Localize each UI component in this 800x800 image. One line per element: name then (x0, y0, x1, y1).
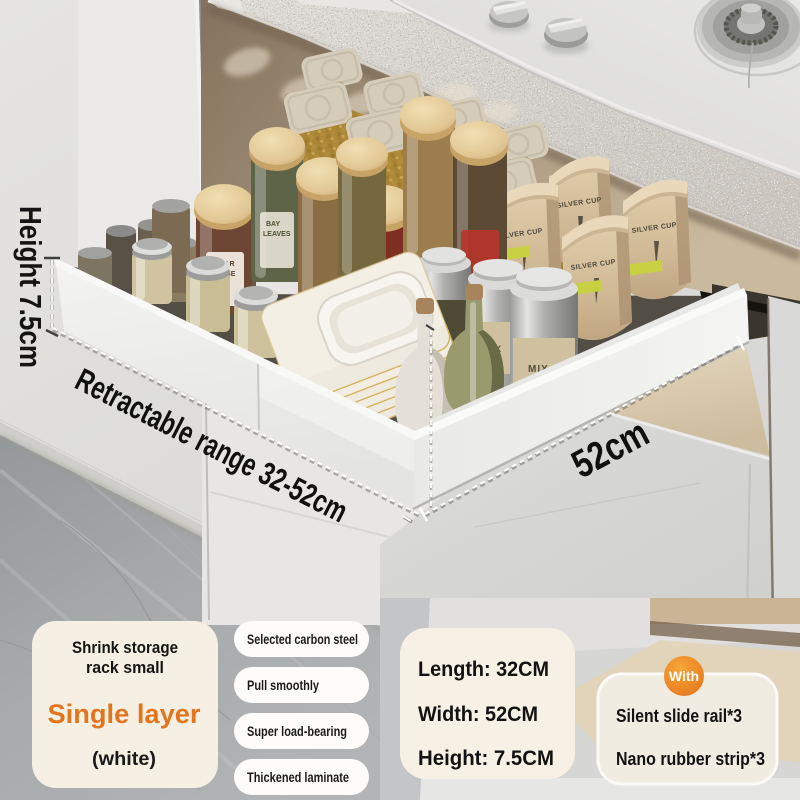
svg-text:Super load-bearing: Super load-bearing (247, 723, 347, 739)
svg-text:Silent slide rail*3: Silent slide rail*3 (616, 706, 742, 726)
svg-text:LEAVES: LEAVES (263, 231, 291, 238)
svg-text:With: With (669, 668, 699, 684)
svg-text:(white): (white) (92, 749, 156, 770)
svg-text:Length: 32CM: Length: 32CM (418, 658, 549, 681)
svg-text:rack small: rack small (86, 658, 164, 677)
svg-text:Height: 7.5CM: Height: 7.5CM (418, 747, 554, 770)
svg-text:Width: 52CM: Width: 52CM (418, 703, 538, 726)
svg-text:Nano rubber strip*3: Nano rubber strip*3 (616, 749, 765, 769)
svg-text:BAY: BAY (266, 221, 280, 228)
svg-text:Single layer: Single layer (48, 699, 201, 729)
svg-text:Selected carbon steel: Selected carbon steel (247, 631, 358, 647)
svg-text:Pull smoothly: Pull smoothly (247, 677, 319, 693)
svg-text:Shrink storage: Shrink storage (72, 638, 178, 657)
svg-text:Height 7.5cm: Height 7.5cm (13, 206, 48, 368)
svg-text:Thickened laminate: Thickened laminate (247, 769, 349, 785)
